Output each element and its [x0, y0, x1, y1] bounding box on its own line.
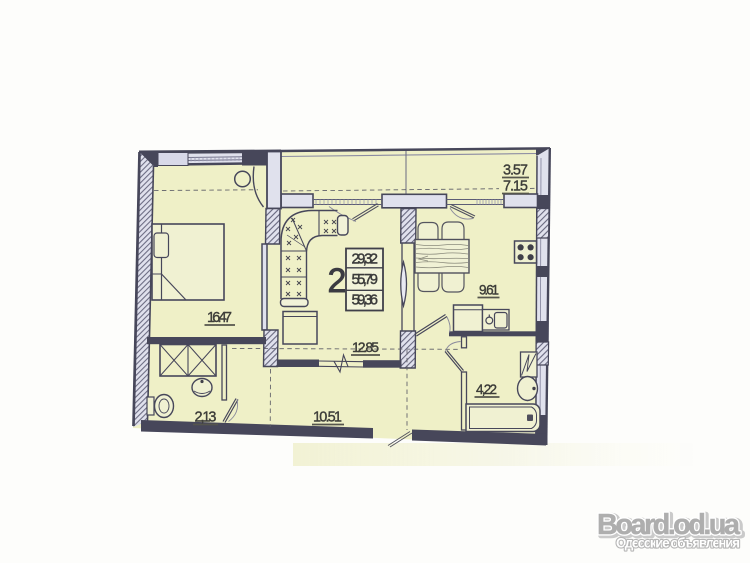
svg-text:59,36: 59,36 [352, 292, 379, 308]
svg-text:2,13: 2,13 [195, 410, 217, 426]
svg-text:Одесские объявления: Одесские объявления [616, 536, 740, 551]
svg-text:55,79: 55,79 [352, 272, 379, 288]
svg-text:9.61: 9.61 [479, 283, 499, 298]
svg-text:10.51: 10.51 [313, 410, 342, 426]
svg-text:3.57: 3.57 [503, 163, 528, 179]
svg-text:29,32: 29,32 [352, 252, 379, 268]
svg-text:16.47: 16.47 [207, 310, 232, 326]
svg-text:4,22: 4,22 [476, 382, 497, 397]
svg-text:2: 2 [328, 262, 347, 300]
svg-text:12.85: 12.85 [352, 339, 379, 355]
svg-text:7.15: 7.15 [503, 179, 528, 195]
